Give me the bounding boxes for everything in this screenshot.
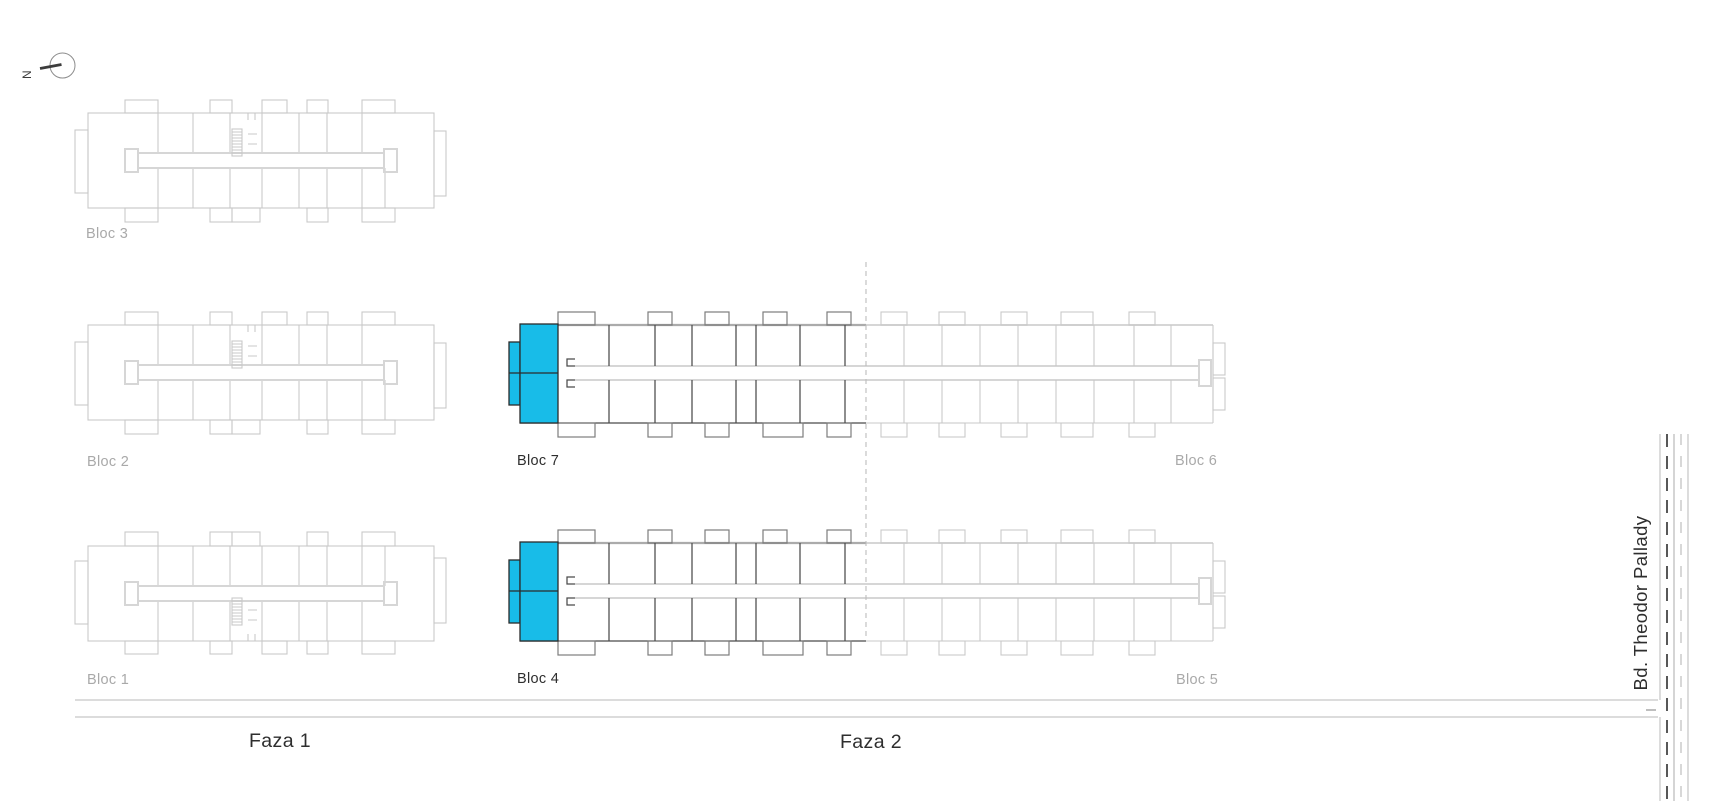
bloc-4-bloc-5-floorplan[interactable] bbox=[520, 530, 1225, 655]
site-plan-canvas: N bbox=[0, 0, 1721, 801]
compass-needle bbox=[40, 65, 62, 69]
highlighted-unit-bloc-4[interactable] bbox=[509, 542, 558, 641]
bloc-1-floorplan bbox=[75, 532, 446, 654]
bloc-6-label: Bloc 6 bbox=[1175, 453, 1217, 469]
bloc-4-label: Bloc 4 bbox=[517, 671, 559, 687]
bloc-5-label: Bloc 5 bbox=[1176, 672, 1218, 688]
site-plan-drawing: N bbox=[0, 0, 1721, 801]
phase-2-label: Faza 2 bbox=[840, 731, 902, 754]
bloc-2-floorplan bbox=[75, 312, 446, 434]
bloc-7-label: Bloc 7 bbox=[517, 453, 559, 469]
bloc-7-bloc-6-floorplan[interactable] bbox=[520, 312, 1225, 437]
bloc-2-label: Bloc 2 bbox=[87, 454, 129, 470]
street-name-label: Bd. Theodor Pallady bbox=[1630, 516, 1652, 691]
phase-1-label: Faza 1 bbox=[249, 730, 311, 753]
highlighted-unit-bloc-7[interactable] bbox=[509, 324, 558, 423]
compass-north-letter: N bbox=[20, 70, 34, 79]
road-bottom bbox=[75, 700, 1658, 717]
compass-icon: N bbox=[20, 53, 75, 79]
bloc-3-label: Bloc 3 bbox=[86, 226, 128, 242]
bloc-1-label: Bloc 1 bbox=[87, 672, 129, 688]
street-theodor-pallady-lines bbox=[1660, 434, 1688, 801]
bloc-3-floorplan bbox=[75, 100, 446, 222]
